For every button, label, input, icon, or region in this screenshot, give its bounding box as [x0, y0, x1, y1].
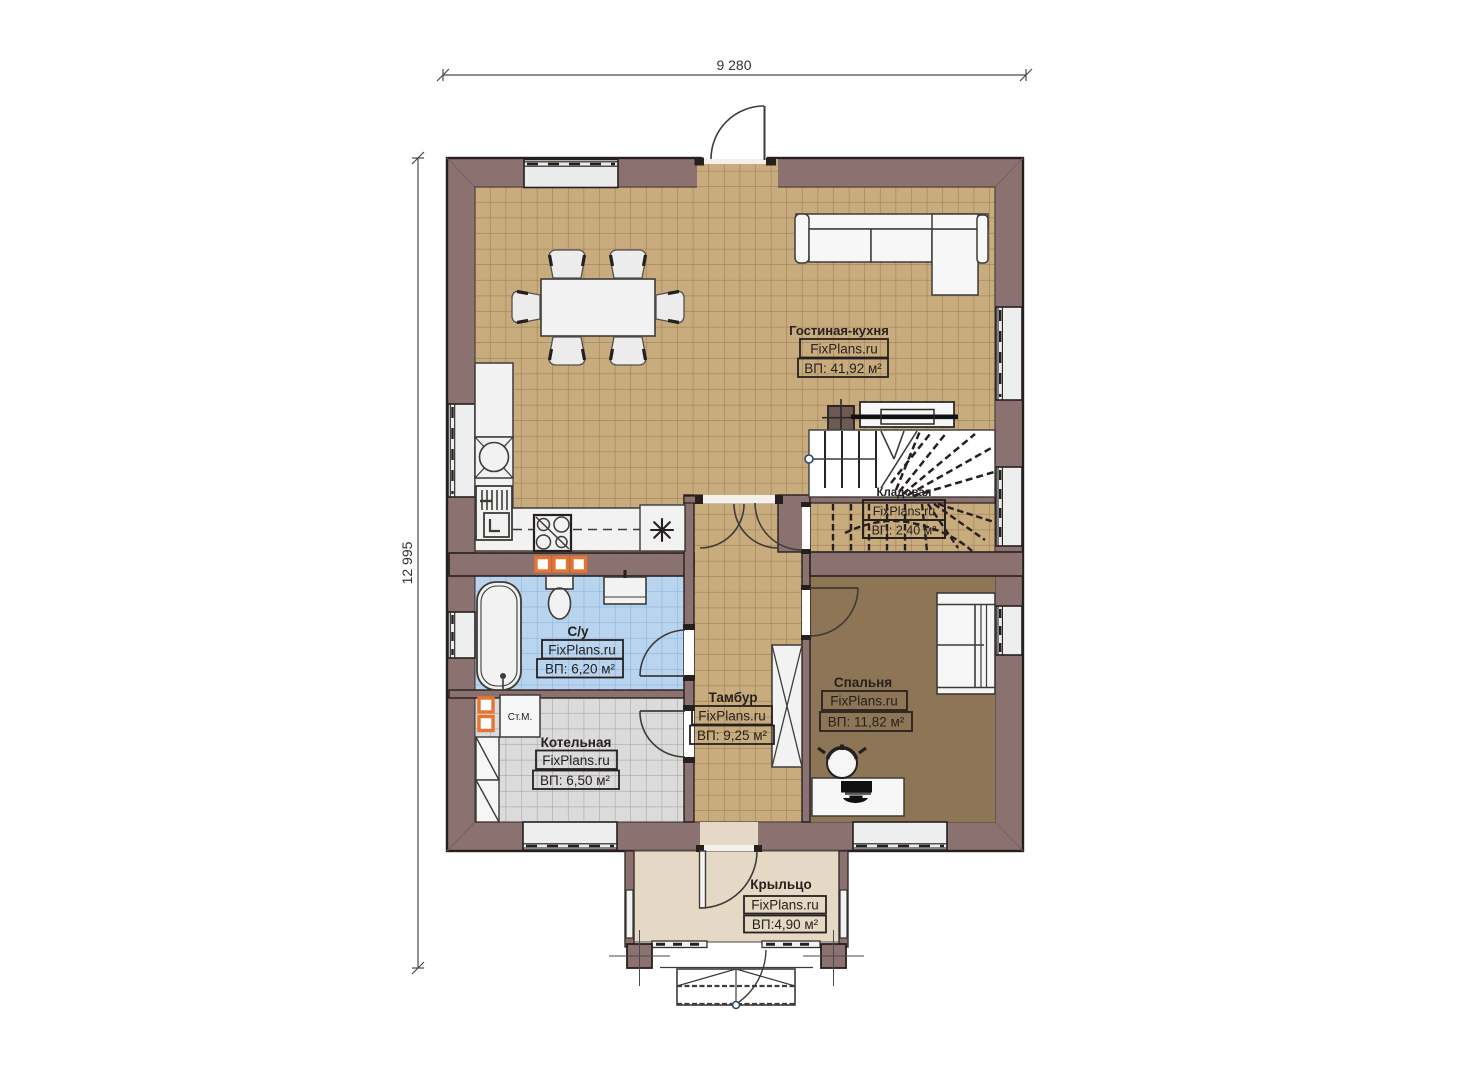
svg-text:Кладовая: Кладовая — [876, 487, 931, 499]
svg-text:FixPlans.ru: FixPlans.ru — [830, 694, 898, 709]
svg-text:ВП: 9,25 м²: ВП: 9,25 м² — [697, 728, 768, 743]
svg-text:ВП: 2,40 м²: ВП: 2,40 м² — [872, 524, 937, 538]
svg-text:FixPlans.ru: FixPlans.ru — [698, 709, 766, 724]
svg-text:Спальня: Спальня — [834, 675, 892, 690]
svg-text:С/у: С/у — [567, 624, 589, 639]
svg-text:ВП: 41,92 м²: ВП: 41,92 м² — [804, 361, 882, 376]
svg-text:ВП: 6,20 м²: ВП: 6,20 м² — [545, 662, 616, 677]
svg-text:12 995: 12 995 — [399, 541, 415, 584]
svg-text:9 280: 9 280 — [716, 57, 751, 73]
svg-text:FixPlans.ru: FixPlans.ru — [751, 898, 819, 913]
svg-text:Котельная: Котельная — [541, 735, 612, 750]
svg-text:Гостиная-кухня: Гостиная-кухня — [789, 323, 889, 338]
svg-text:FixPlans.ru: FixPlans.ru — [548, 643, 616, 658]
svg-text:Крыльцо: Крыльцо — [750, 877, 811, 892]
svg-text:FixPlans.ru: FixPlans.ru — [810, 342, 878, 357]
svg-text:ВП:4,90 м²: ВП:4,90 м² — [752, 917, 819, 932]
svg-text:FixPlans.ru: FixPlans.ru — [542, 753, 610, 768]
svg-text:ВП: 6,50 м²: ВП: 6,50 м² — [540, 773, 611, 788]
svg-text:Тамбур: Тамбур — [709, 690, 758, 705]
svg-text:Ст.М.: Ст.М. — [508, 712, 533, 723]
svg-text:ВП: 11,82 м²: ВП: 11,82 м² — [828, 715, 905, 730]
svg-text:FixPlans.ru: FixPlans.ru — [873, 505, 936, 519]
